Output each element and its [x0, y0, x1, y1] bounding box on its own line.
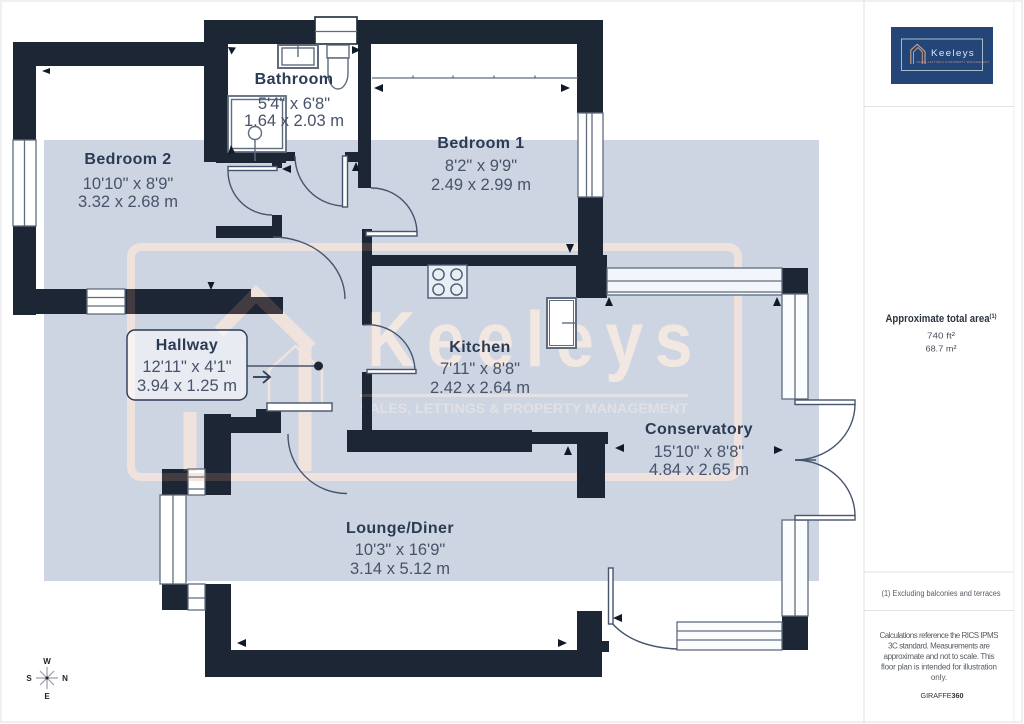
svg-text:GIRAFFE360: GIRAFFE360: [921, 691, 964, 700]
svg-text:Calculations reference the RIC: Calculations reference the RICS IPMS: [880, 631, 999, 640]
svg-text:Lounge/Diner: Lounge/Diner: [346, 520, 454, 537]
svg-text:Bathroom: Bathroom: [255, 71, 334, 88]
svg-text:N: N: [62, 674, 68, 683]
svg-text:10'3" x 16'9": 10'3" x 16'9": [355, 541, 446, 559]
svg-text:Bedroom 2: Bedroom 2: [84, 151, 171, 168]
svg-text:2.49 x 2.99 m: 2.49 x 2.99 m: [431, 176, 531, 194]
svg-text:only.: only.: [931, 673, 947, 682]
svg-text:1.64 x 2.03 m: 1.64 x 2.03 m: [244, 112, 344, 130]
svg-text:SALES, LETTINGS & PROPERTY MAN: SALES, LETTINGS & PROPERTY MANAGEMENT: [360, 401, 689, 416]
svg-text:3.94 x 1.25 m: 3.94 x 1.25 m: [137, 377, 237, 395]
svg-text:3C standard. Measurements are: 3C standard. Measurements are: [888, 642, 991, 651]
svg-text:Conservatory: Conservatory: [645, 421, 753, 438]
svg-text:floor plan is intended for ill: floor plan is intended for illustration: [881, 663, 997, 672]
svg-text:68.7 m²: 68.7 m²: [926, 344, 957, 354]
svg-text:Kitchen: Kitchen: [449, 339, 510, 356]
svg-text:5'4" x 6'8": 5'4" x 6'8": [258, 95, 330, 113]
svg-text:(1) Excluding balconies and te: (1) Excluding balconies and terraces: [882, 589, 1001, 598]
svg-text:approximate and not to scale.: approximate and not to scale. This: [884, 652, 995, 661]
svg-text:SALES LETTINGS & PROPERTY MANA: SALES LETTINGS & PROPERTY MANAGEMENT: [917, 60, 990, 64]
svg-text:E: E: [44, 692, 50, 701]
svg-text:Hallway: Hallway: [156, 337, 218, 354]
svg-text:10'10" x 8'9": 10'10" x 8'9": [83, 175, 174, 193]
svg-text:Keeleys: Keeleys: [366, 295, 704, 383]
svg-text:2.42 x 2.64 m: 2.42 x 2.64 m: [430, 379, 530, 397]
svg-text:Keeleys: Keeleys: [931, 48, 975, 59]
svg-text:Approximate total area(1): Approximate total area(1): [886, 313, 997, 325]
svg-text:3.32 x 2.68 m: 3.32 x 2.68 m: [78, 193, 178, 211]
svg-text:7'11" x 8'8": 7'11" x 8'8": [440, 360, 520, 378]
svg-text:4.84 x 2.65 m: 4.84 x 2.65 m: [649, 461, 749, 479]
svg-text:15'10" x 8'8": 15'10" x 8'8": [654, 443, 745, 461]
svg-text:8'2" x 9'9": 8'2" x 9'9": [445, 157, 517, 175]
svg-text:S: S: [26, 674, 32, 683]
svg-text:740 ft²: 740 ft²: [927, 331, 955, 341]
svg-text:W: W: [43, 657, 51, 666]
svg-text:Bedroom 1: Bedroom 1: [437, 135, 524, 152]
svg-text:3.14 x 5.12 m: 3.14 x 5.12 m: [350, 560, 450, 578]
svg-text:12'11" x 4'1": 12'11" x 4'1": [142, 358, 231, 376]
